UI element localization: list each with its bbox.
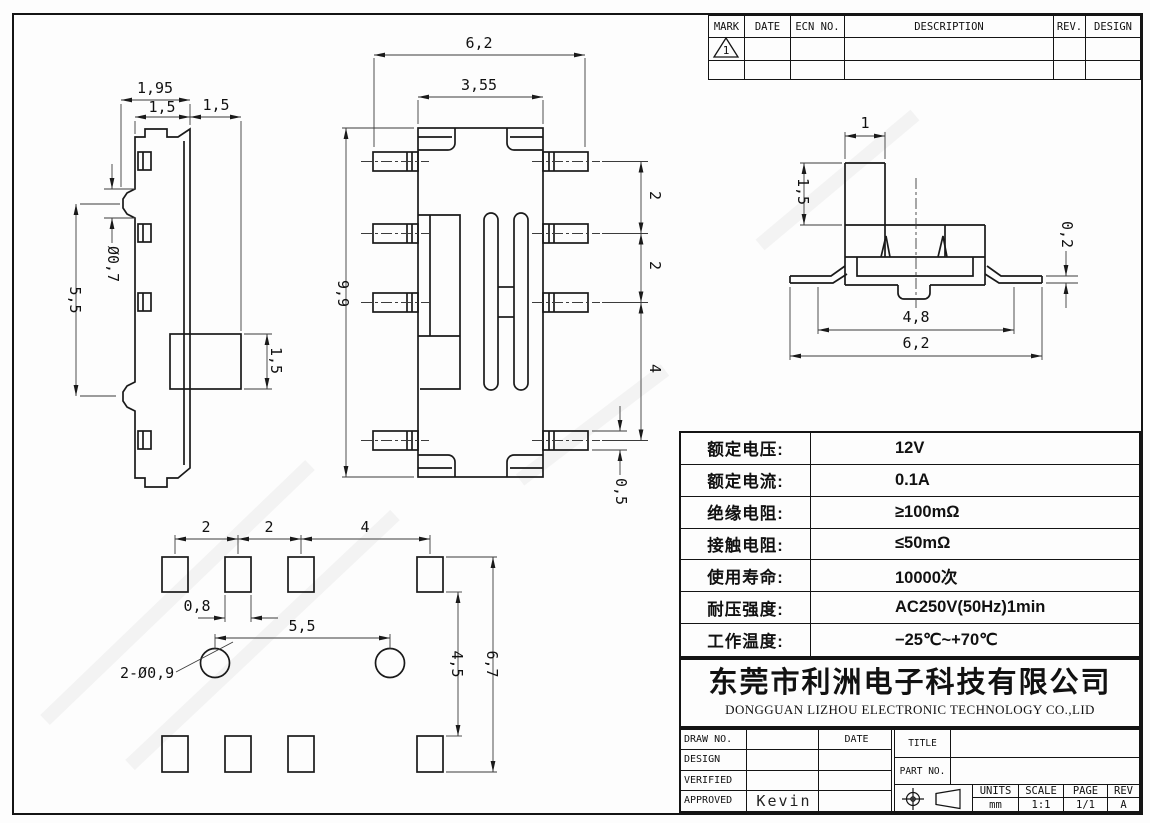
title-row: TITLE bbox=[895, 730, 1139, 758]
rev-header-mark: MARK bbox=[709, 16, 745, 38]
rev-row2-cell bbox=[845, 61, 1054, 79]
spec-value: 10000次 bbox=[811, 560, 1139, 591]
design-label: DESIGN bbox=[681, 750, 747, 770]
approved-signature: Kevin bbox=[750, 792, 818, 810]
design-date bbox=[819, 750, 891, 770]
spec-value: AC250V(50Hz)1min bbox=[811, 592, 1139, 623]
spec-row: 耐压强度: AC250V(50Hz)1min bbox=[681, 592, 1139, 624]
spec-label: 额定电流: bbox=[681, 465, 811, 496]
rev-header-ecn: ECN NO. bbox=[791, 16, 845, 38]
part-no-label: PART NO. bbox=[895, 758, 951, 784]
part-no-value bbox=[951, 758, 1139, 784]
rev-header-description: DESCRIPTION bbox=[845, 16, 1054, 38]
page-label: PAGE bbox=[1064, 785, 1108, 798]
units-grid: UNITS SCALE PAGE REV mm 1:1 1/1 A bbox=[973, 785, 1139, 811]
rev-row2-cell bbox=[709, 61, 745, 79]
design-value bbox=[747, 750, 819, 770]
rev-row1-cell bbox=[745, 38, 791, 61]
projection-symbol-cell bbox=[895, 785, 973, 811]
rev-row1-cell bbox=[1054, 38, 1086, 61]
spec-value: ≥100mΩ bbox=[811, 497, 1139, 528]
date-label-text: DATE bbox=[822, 734, 891, 745]
date-label: DATE bbox=[819, 730, 891, 750]
draw-no-value bbox=[747, 730, 819, 750]
spec-label: 耐压强度: bbox=[681, 592, 811, 623]
rev-row2-cell bbox=[745, 61, 791, 79]
rev-row1-cell bbox=[845, 38, 1054, 61]
spec-row: 绝缘电阻: ≥100mΩ bbox=[681, 497, 1139, 529]
spec-label: 工作温度: bbox=[681, 624, 811, 656]
rev-row1-cell bbox=[791, 38, 845, 61]
spec-row: 工作温度: −25℃~+70℃ bbox=[681, 624, 1139, 656]
spec-value: 12V bbox=[811, 433, 1139, 464]
approved-value: Kevin bbox=[747, 791, 819, 811]
rev-value: A bbox=[1108, 798, 1139, 811]
rev-row1-mark-cell bbox=[709, 38, 745, 61]
units-row: UNITS SCALE PAGE REV mm 1:1 1/1 A bbox=[895, 785, 1139, 811]
spec-value: −25℃~+70℃ bbox=[811, 624, 1139, 656]
title-value bbox=[951, 730, 1139, 757]
rev-header-design: DESIGN bbox=[1086, 16, 1140, 38]
spec-row: 接触电阻: ≤50mΩ bbox=[681, 529, 1139, 561]
company-name-en: DONGGUAN LIZHOU ELECTRONIC TECHNOLOGY CO… bbox=[725, 702, 1095, 718]
page-value: 1/1 bbox=[1064, 798, 1108, 811]
title-block-left: DRAW NO. DATE DESIGN VERIFIED APPROVED K… bbox=[681, 730, 892, 811]
verified-value bbox=[747, 771, 819, 791]
rev-header-rev: REV. bbox=[1054, 16, 1086, 38]
rev-row1-cell bbox=[1086, 38, 1140, 61]
verified-date bbox=[819, 771, 891, 791]
spec-row: 使用寿命: 10000次 bbox=[681, 560, 1139, 592]
spec-label: 使用寿命: bbox=[681, 560, 811, 591]
rev-row2-cell bbox=[791, 61, 845, 79]
company-name-cn: 东莞市利洲电子科技有限公司 bbox=[708, 668, 1111, 700]
revision-table: MARK DATE ECN NO. DESCRIPTION REV. DESIG… bbox=[708, 15, 1141, 80]
spec-value: ≤50mΩ bbox=[811, 529, 1139, 560]
title-block: DRAW NO. DATE DESIGN VERIFIED APPROVED K… bbox=[679, 728, 1141, 813]
scale-label: SCALE bbox=[1019, 785, 1064, 798]
rev-row2-cell bbox=[1086, 61, 1140, 79]
rev-row2-cell bbox=[1054, 61, 1086, 79]
drawing-sheet: MARK DATE ECN NO. DESCRIPTION REV. DESIG… bbox=[0, 0, 1150, 823]
title-label: TITLE bbox=[895, 730, 951, 757]
spec-row: 额定电压: 12V bbox=[681, 433, 1139, 465]
part-no-row: PART NO. bbox=[895, 758, 1139, 785]
units-label: UNITS bbox=[973, 785, 1019, 798]
draw-no-label: DRAW NO. bbox=[681, 730, 747, 750]
units-value: mm bbox=[973, 798, 1019, 811]
company-block: 东莞市利洲电子科技有限公司 DONGGUAN LIZHOU ELECTRONIC… bbox=[679, 658, 1141, 728]
spec-value: 0.1A bbox=[811, 465, 1139, 496]
rev-label: REV bbox=[1108, 785, 1139, 798]
scale-value: 1:1 bbox=[1019, 798, 1064, 811]
spec-label: 额定电压: bbox=[681, 433, 811, 464]
spec-label: 绝缘电阻: bbox=[681, 497, 811, 528]
title-block-right: TITLE PART NO. UNITS SCALE PAGE REV mm 1… bbox=[894, 730, 1139, 811]
approved-date bbox=[819, 791, 891, 811]
verified-label: VERIFIED bbox=[681, 771, 747, 791]
spec-row: 额定电流: 0.1A bbox=[681, 465, 1139, 497]
approved-label: APPROVED bbox=[681, 791, 747, 811]
spec-label: 接触电阻: bbox=[681, 529, 811, 560]
spec-table: 额定电压: 12V 额定电流: 0.1A 绝缘电阻: ≥100mΩ 接触电阻: … bbox=[679, 431, 1141, 658]
rev-header-date: DATE bbox=[745, 16, 791, 38]
